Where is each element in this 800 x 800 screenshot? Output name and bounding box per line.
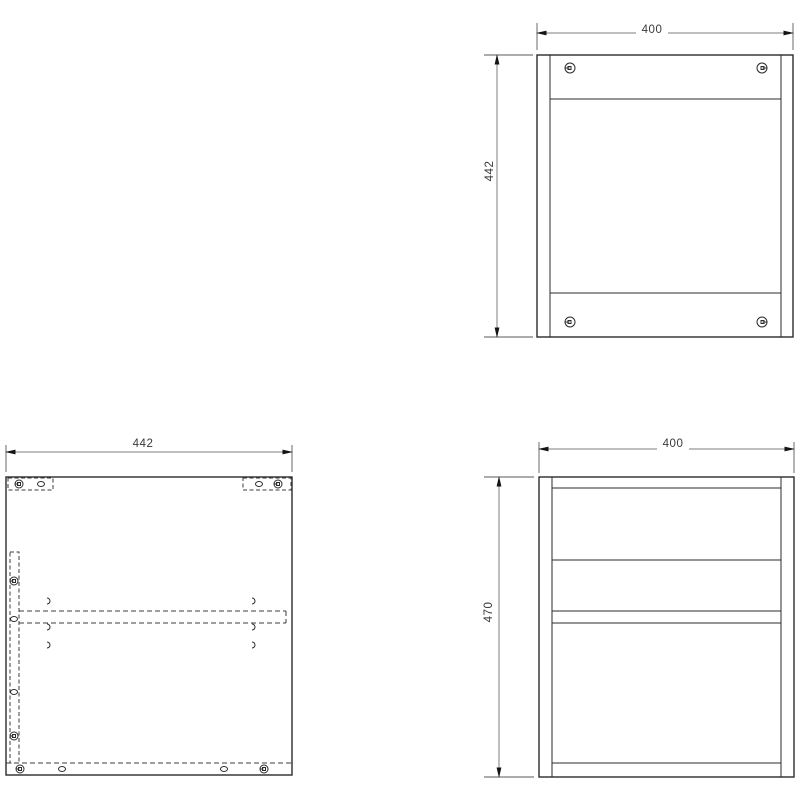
pilot-hole-icon xyxy=(47,598,50,604)
top-view-outline xyxy=(537,55,793,337)
panel-outline xyxy=(539,477,794,777)
front-view-outline xyxy=(539,477,794,777)
technical-drawing: 400 442 442 xyxy=(0,0,800,800)
dimension-label: 442 xyxy=(484,161,496,182)
dowel-icon xyxy=(11,690,18,695)
cam-lock-icon xyxy=(565,63,575,73)
front-view: 400 470 xyxy=(481,436,794,777)
dowel-icon xyxy=(38,482,45,487)
cam-lock-icon xyxy=(10,577,18,585)
cam-lock-icon xyxy=(757,317,767,327)
dowel-icon xyxy=(221,767,228,772)
pilot-hole-icon xyxy=(47,624,50,630)
hidden-shelf-band xyxy=(19,611,286,623)
dowel-icon xyxy=(59,767,66,772)
dowel-icon xyxy=(256,482,263,487)
hidden-fitting-outline xyxy=(243,478,291,490)
drawing-canvas: 400 442 442 xyxy=(0,0,800,800)
cam-lock-icon xyxy=(10,732,18,740)
side-panel-width-dimension: 442 xyxy=(6,436,292,472)
pilot-hole-icon xyxy=(252,598,255,604)
dimension-label: 400 xyxy=(663,438,684,450)
pilot-hole-icon xyxy=(252,624,255,630)
front-view-width-dimension: 400 xyxy=(539,436,794,473)
cam-lock-icon xyxy=(15,480,23,488)
cam-lock-icon xyxy=(565,317,575,327)
top-view-width-dimension: 400 xyxy=(537,22,793,50)
cam-lock-icon xyxy=(16,765,24,773)
top-view-height-dimension: 442 xyxy=(481,55,533,337)
top-view: 400 442 xyxy=(481,22,793,337)
pilot-hole-icon xyxy=(252,642,255,648)
pilot-hole-icon xyxy=(47,642,50,648)
cam-lock-icon xyxy=(274,480,282,488)
panel-outline xyxy=(6,477,292,775)
dowel-icon xyxy=(11,617,18,622)
dimension-label: 400 xyxy=(642,24,663,36)
side-panel-view: 442 xyxy=(6,436,292,775)
dimension-label: 470 xyxy=(483,602,495,623)
cam-lock-icon xyxy=(260,765,268,773)
cam-lock-icon xyxy=(757,63,767,73)
dimension-label: 442 xyxy=(133,438,154,450)
panel-outline xyxy=(537,55,793,337)
front-view-height-dimension: 470 xyxy=(481,477,534,777)
